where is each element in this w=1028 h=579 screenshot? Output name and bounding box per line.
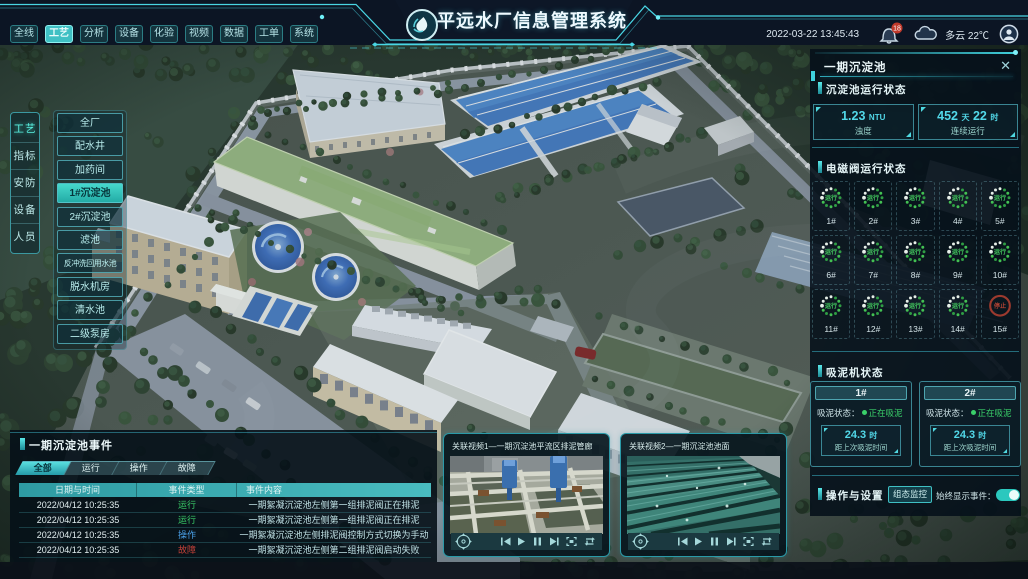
svg-text:运行: 运行 [952, 248, 964, 256]
svg-text:运行: 运行 [825, 248, 837, 256]
svg-text:停止: 停止 [994, 302, 1006, 310]
svg-text:运行: 运行 [867, 248, 879, 256]
svg-text:18: 18 [893, 26, 901, 33]
svg-text:运行: 运行 [994, 194, 1006, 202]
svg-text:运行: 运行 [994, 248, 1006, 256]
svg-text:运行: 运行 [909, 248, 921, 256]
svg-text:运行: 运行 [867, 302, 879, 310]
svg-text:运行: 运行 [909, 302, 921, 310]
svg-text:运行: 运行 [952, 302, 964, 310]
svg-text:运行: 运行 [867, 194, 879, 202]
svg-text:运行: 运行 [825, 302, 837, 310]
svg-text:运行: 运行 [909, 194, 921, 202]
svg-text:运行: 运行 [825, 194, 837, 202]
svg-text:运行: 运行 [952, 194, 964, 202]
